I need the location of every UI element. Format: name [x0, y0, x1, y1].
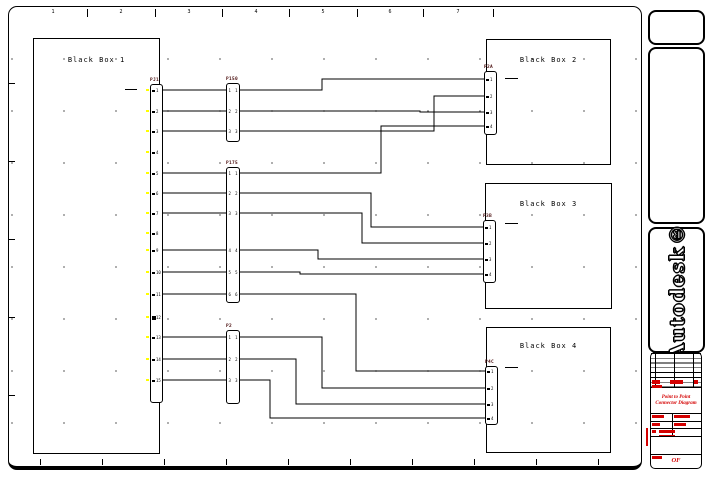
title-field-red [674, 423, 686, 426]
pin-number: 4 [229, 249, 231, 253]
pin-number: 2 [156, 110, 158, 114]
title-block: Point to Point Connector Diagram OF [650, 352, 702, 469]
pin-highlight-mark [146, 192, 149, 194]
pin-number: 2 [235, 192, 237, 196]
witness-dash [125, 89, 137, 90]
pin-number: 12 [156, 316, 161, 320]
title-block-red-mark [646, 428, 648, 446]
pin-number: 2 [229, 192, 231, 196]
revision-entry-red [652, 385, 662, 389]
pin-number: 3 [235, 130, 237, 134]
connector-pj1-label: PJ1 [150, 78, 159, 83]
pin-number: 5 [235, 271, 237, 275]
pin-square [487, 371, 490, 374]
pin-square [152, 250, 155, 253]
pin-highlight-mark [146, 172, 149, 174]
title-block-rule [651, 454, 701, 455]
ruler-zone-number: 1 [48, 9, 58, 15]
connector-p150-label: P150 [226, 77, 238, 82]
pin-number: 7 [156, 212, 158, 216]
pin-square [485, 274, 488, 277]
black-box-4-label: Black Box 4 [487, 342, 610, 350]
revision-entry-red [670, 380, 683, 384]
pin-highlight-mark [146, 110, 149, 112]
pin-highlight-mark [146, 130, 149, 132]
drawing-page: 1 2 3 4 5 6 7 Black Box 1 Black Box 2 Bl… [0, 0, 708, 477]
pin-number: 3 [491, 403, 493, 407]
black-box-2: Black Box 2 [486, 39, 611, 165]
drawing-title-line2: Connector Diagram [651, 401, 701, 407]
edge-tick [226, 459, 227, 465]
pin-highlight-mark [146, 316, 149, 318]
pin-square [487, 388, 490, 391]
edge-tick [412, 459, 413, 465]
connector-p3b-label: P3B [483, 214, 492, 219]
pin-number: 1 [490, 78, 492, 82]
connector-p2a-label: P2A [484, 65, 493, 70]
ruler-tick [493, 9, 494, 17]
pin-number: 6 [229, 293, 231, 297]
side-panel-tall [648, 47, 705, 224]
pin-square [487, 418, 490, 421]
pin-highlight-mark [146, 336, 149, 338]
pin-highlight-mark [146, 151, 149, 153]
ruler-tick [155, 9, 156, 17]
title-field-red [659, 430, 675, 433]
title-field-red [659, 435, 675, 436]
connector-p175: P175 112233445566 [226, 167, 240, 303]
connector-pj1: PJ1 123456789101112131415 [150, 84, 163, 403]
pin-number: 2 [489, 242, 491, 246]
pin-number: 4 [235, 249, 237, 253]
witness-dash [505, 223, 518, 224]
pin-number: 4 [156, 151, 158, 155]
pin-number: 1 [235, 89, 237, 93]
pin-square [486, 96, 489, 99]
pin-square [152, 90, 155, 93]
connector-p4c-label: P4C [485, 360, 494, 365]
ruler-zone-number: 3 [184, 9, 194, 15]
ruler-tick [289, 9, 290, 17]
ruler-zone-number: 4 [251, 9, 261, 15]
edge-tick [598, 459, 599, 465]
pin-number: 3 [229, 379, 231, 383]
title-block-rule [651, 413, 701, 414]
pin-number: 1 [491, 370, 493, 374]
pin-square [152, 272, 155, 275]
pin-square [152, 173, 155, 176]
edge-tick [9, 395, 15, 396]
pin-highlight-mark [146, 271, 149, 273]
pin-number: 8 [156, 232, 158, 236]
pin-square [152, 294, 155, 297]
pin-number: 3 [235, 379, 237, 383]
edge-tick [102, 459, 103, 465]
witness-dash [505, 367, 518, 368]
pin-square [486, 112, 489, 115]
ruler-zone-number: 7 [453, 9, 463, 15]
black-box-3-label: Black Box 3 [486, 200, 611, 208]
pin-number: 9 [156, 249, 158, 253]
pin-number: 4 [491, 417, 493, 421]
edge-tick [164, 459, 165, 465]
pin-number: 1 [489, 226, 491, 230]
pin-square [485, 259, 488, 262]
connector-p2-label: P2 [226, 324, 232, 329]
pin-number: 2 [235, 358, 237, 362]
ruler-tick [423, 9, 424, 17]
pin-number: 3 [490, 111, 492, 115]
pin-number: 3 [156, 130, 158, 134]
ruler-zone-number: 6 [385, 9, 395, 15]
pin-number: 4 [489, 273, 491, 277]
pin-square [485, 227, 488, 230]
edge-tick [9, 317, 15, 318]
pin-number: 2 [229, 358, 231, 362]
pin-number: 3 [489, 258, 491, 262]
pin-highlight-mark [146, 249, 149, 251]
title-field-red [652, 423, 660, 426]
pin-number: 2 [490, 95, 492, 99]
pin-square [152, 337, 155, 340]
pin-number: 6 [235, 293, 237, 297]
ruler-tick [87, 9, 88, 17]
pin-number: 1 [229, 172, 231, 176]
pin-highlight-mark [146, 358, 149, 360]
edge-tick [288, 459, 289, 465]
pin-number: 2 [229, 110, 231, 114]
title-block-rule [651, 436, 701, 437]
black-box-3: Black Box 3 [485, 183, 612, 309]
black-box-1-label: Black Box 1 [34, 56, 159, 64]
ruler-tick [222, 9, 223, 17]
pin-highlight-mark [146, 212, 149, 214]
pin-number: 15 [156, 379, 161, 383]
pin-number: 1 [156, 89, 158, 93]
pin-number: 1 [229, 336, 231, 340]
black-box-4: Black Box 4 [486, 327, 611, 453]
title-field-red [652, 415, 664, 418]
pin-square [152, 111, 155, 114]
edge-tick [536, 459, 537, 465]
pin-square [152, 193, 155, 196]
pin-number: 13 [156, 336, 161, 340]
pin-number: 11 [156, 293, 161, 297]
edge-tick [9, 83, 15, 84]
connector-p150: P150 112233 [226, 83, 240, 142]
pin-number: 10 [156, 271, 161, 275]
ruler-zone-number: 2 [116, 9, 126, 15]
title-field-red [652, 430, 656, 433]
pin-number: 3 [229, 212, 231, 216]
witness-dash [505, 78, 518, 79]
pin-square [486, 126, 489, 129]
pin-number: 1 [235, 172, 237, 176]
logo-panel: Autodesk® [648, 227, 705, 353]
pin-highlight-mark [146, 293, 149, 295]
pin-number: 3 [229, 130, 231, 134]
edge-tick [474, 459, 475, 465]
pin-number: 14 [156, 358, 161, 362]
pin-square [152, 359, 155, 362]
pin-number: 2 [235, 110, 237, 114]
autodesk-logo: Autodesk® [665, 221, 689, 358]
ruler-tick [357, 9, 358, 17]
pin-number: 4 [490, 125, 492, 129]
pin-square [152, 233, 155, 236]
pin-highlight-mark [146, 379, 149, 381]
pin-square [152, 380, 155, 383]
edge-tick [9, 239, 15, 240]
connector-p2: P2 112233 [226, 330, 240, 404]
pin-number: 6 [156, 192, 158, 196]
sheet-of-label: OF [651, 457, 701, 464]
connector-p175-label: P175 [226, 161, 238, 166]
edge-tick [350, 459, 351, 465]
pin-number: 3 [235, 212, 237, 216]
pin-square [487, 404, 490, 407]
black-box-2-label: Black Box 2 [487, 56, 610, 64]
side-panel-top [648, 10, 705, 45]
pin-number: 5 [229, 271, 231, 275]
pin-number: 1 [235, 336, 237, 340]
pin-number: 1 [229, 89, 231, 93]
connector-p4c: P4C 1234 [485, 366, 498, 425]
connector-p3b: P3B 1234 [483, 220, 496, 283]
title-block-rule [651, 428, 701, 429]
ruler-zone-number: 5 [318, 9, 328, 15]
pin-number: 2 [491, 387, 493, 391]
pin-square [152, 152, 155, 155]
title-block-rule [651, 421, 701, 422]
pin-square [152, 131, 155, 134]
revision-entry-red [694, 380, 698, 384]
pin-square [486, 79, 489, 82]
edge-tick [40, 459, 41, 465]
connector-p2a: P2A 1234 [484, 71, 497, 135]
pin-highlight-mark [146, 232, 149, 234]
pin-number: 5 [156, 172, 158, 176]
title-field-red [674, 415, 690, 418]
revision-entry-red [652, 380, 660, 384]
pin-square [152, 213, 155, 216]
pin-square [485, 243, 488, 246]
pin-highlight-mark [146, 89, 149, 91]
black-box-1: Black Box 1 [33, 38, 160, 454]
edge-tick [9, 161, 15, 162]
